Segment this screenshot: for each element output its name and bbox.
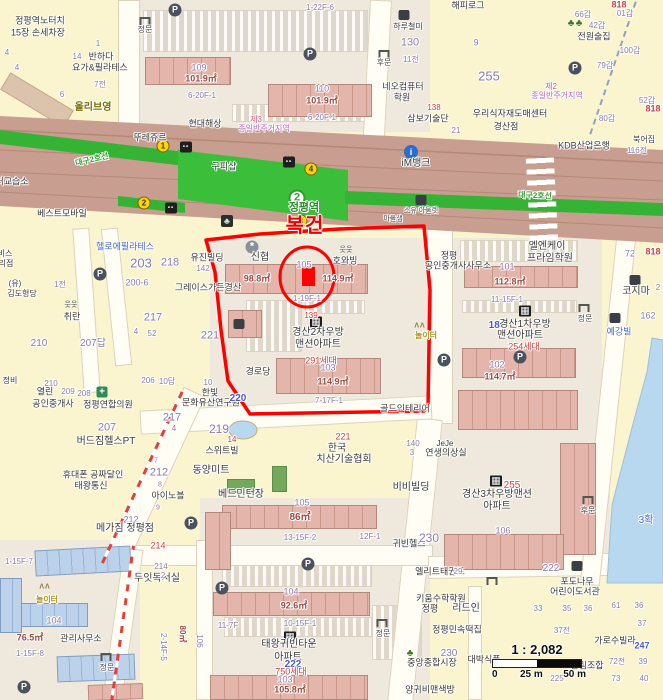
map-overlay-graphics <box>0 0 663 700</box>
scale-ticks: 0 25 m 50 m <box>492 668 582 680</box>
scale-ratio-text: 1 : 2,082 <box>492 642 582 657</box>
scale-tick-0: 0 <box>492 669 498 680</box>
scale-bar-graphic <box>492 659 582 668</box>
selected-parcel-outline <box>206 226 430 414</box>
selected-building-marker[interactable] <box>302 267 315 286</box>
scale-bar: 1 : 2,082 0 25 m 50 m <box>492 642 582 680</box>
scale-bar-black-segment <box>537 660 581 667</box>
scale-tick-50: 50 m <box>563 669 586 680</box>
map-canvas[interactable]: PPPPPPPPPP1243••••••2♣♣♣♣▦▦▦▦ΛΛΛΛ+*i웃웃웃웃… <box>0 0 663 700</box>
scale-bar-white-segment <box>493 660 537 667</box>
scale-tick-25: 25 m <box>520 669 543 680</box>
